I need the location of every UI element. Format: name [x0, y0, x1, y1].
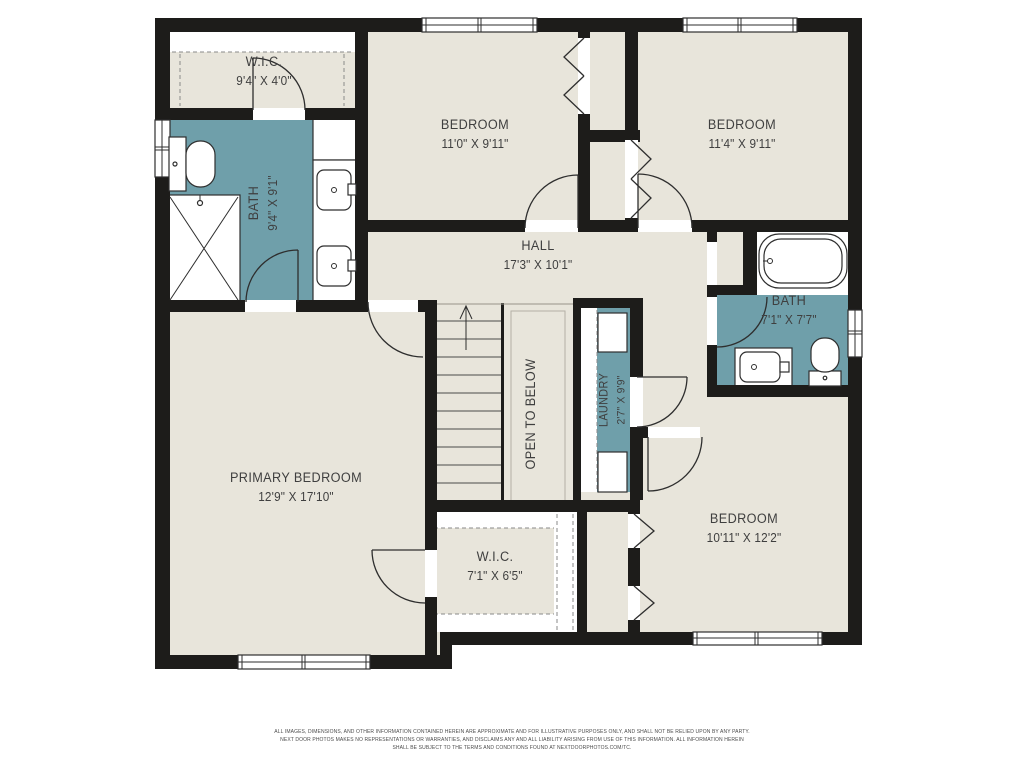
room-dims: 9'4" X 9'1": [265, 175, 281, 230]
disclaimer-line: NEXT DOOR PHOTOS MAKES NO REPRESENTATION…: [0, 737, 1024, 745]
room-name: PRIMARY BEDROOM: [230, 469, 362, 487]
floor-plan-drawing: [0, 0, 1024, 768]
room-label-bath-right: BATH 7'1" X 7'7": [761, 292, 816, 328]
window: [693, 632, 822, 645]
laundry-door-strip: [581, 306, 597, 492]
window: [422, 18, 537, 32]
room-name: BEDROOM: [710, 510, 778, 528]
room-name: W.I.C.: [246, 53, 283, 71]
wic-shelf-side: [554, 512, 578, 643]
room-label-primary-bedroom: PRIMARY BEDROOM 12'9" X 17'10": [230, 469, 362, 505]
room-label-wic-bottom: W.I.C. 7'1" X 6'5": [467, 548, 522, 584]
toilet-icon: [169, 137, 215, 191]
room-name: BEDROOM: [708, 116, 776, 134]
room-dims: 17'3" X 10'1": [504, 257, 573, 273]
room-name: W.I.C.: [477, 548, 514, 566]
washer-icon: [598, 313, 627, 352]
room-dims: 10'11" X 12'2": [707, 530, 782, 546]
room-dims: 7'1" X 6'5": [467, 568, 522, 584]
room-label-bath-left: BATH 9'4" X 9'1": [245, 175, 281, 230]
room-dims: 2'7" X 9'9": [614, 376, 628, 425]
window: [848, 310, 862, 357]
room-label-hall: HALL 17'3" X 10'1": [504, 237, 573, 273]
disclaimer-line: SHALL BE SUBJECT TO THE TERMS AND CONDIT…: [0, 745, 1024, 753]
room-dims: 11'0" X 9'11": [441, 136, 508, 152]
room-label-bedroom-bottom-right: BEDROOM 10'11" X 12'2": [707, 510, 782, 546]
wic-shelf-bottom: [432, 614, 554, 632]
room-name: BATH: [245, 186, 263, 220]
wic-top-shelf: [170, 32, 356, 52]
room-label-open-to-below: OPEN TO BELOW: [522, 359, 540, 470]
toilet-icon: [809, 338, 841, 386]
bathtub-icon: [759, 234, 847, 288]
room-dims: 11'4" X 9'11": [708, 136, 775, 152]
linen-cabinet: [313, 116, 357, 160]
room-dims: 12'9" X 17'10": [258, 489, 334, 505]
room-name: OPEN TO BELOW: [522, 359, 540, 470]
room-name: BEDROOM: [441, 116, 509, 134]
room-label-laundry: LAUNDRY 2'7" X 9'9": [597, 373, 628, 427]
window: [155, 120, 170, 177]
stair-railing: [501, 303, 504, 502]
window: [238, 655, 370, 669]
floor-plan-page: W.I.C. 9'4" X 4'0" BATH 9'4" X 9'1" BEDR…: [0, 0, 1024, 768]
disclaimer-line: ALL IMAGES, DIMENSIONS, AND OTHER INFORM…: [0, 729, 1024, 737]
room-label-bedroom-top-right: BEDROOM 11'4" X 9'11": [708, 116, 776, 152]
dryer-icon: [598, 452, 627, 492]
room-name: LAUNDRY: [597, 373, 612, 427]
window: [683, 18, 797, 32]
disclaimer-text: ALL IMAGES, DIMENSIONS, AND OTHER INFORM…: [0, 729, 1024, 752]
room-dims: 9'4" X 4'0": [236, 73, 291, 89]
room-dims: 7'1" X 7'7": [761, 312, 816, 328]
wic-shelf-top: [432, 512, 554, 528]
room-name: HALL: [521, 237, 554, 255]
room-label-wic-top: W.I.C. 9'4" X 4'0": [236, 53, 291, 89]
room-label-bedroom-top-middle: BEDROOM 11'0" X 9'11": [441, 116, 509, 152]
room-name: BATH: [772, 292, 806, 310]
